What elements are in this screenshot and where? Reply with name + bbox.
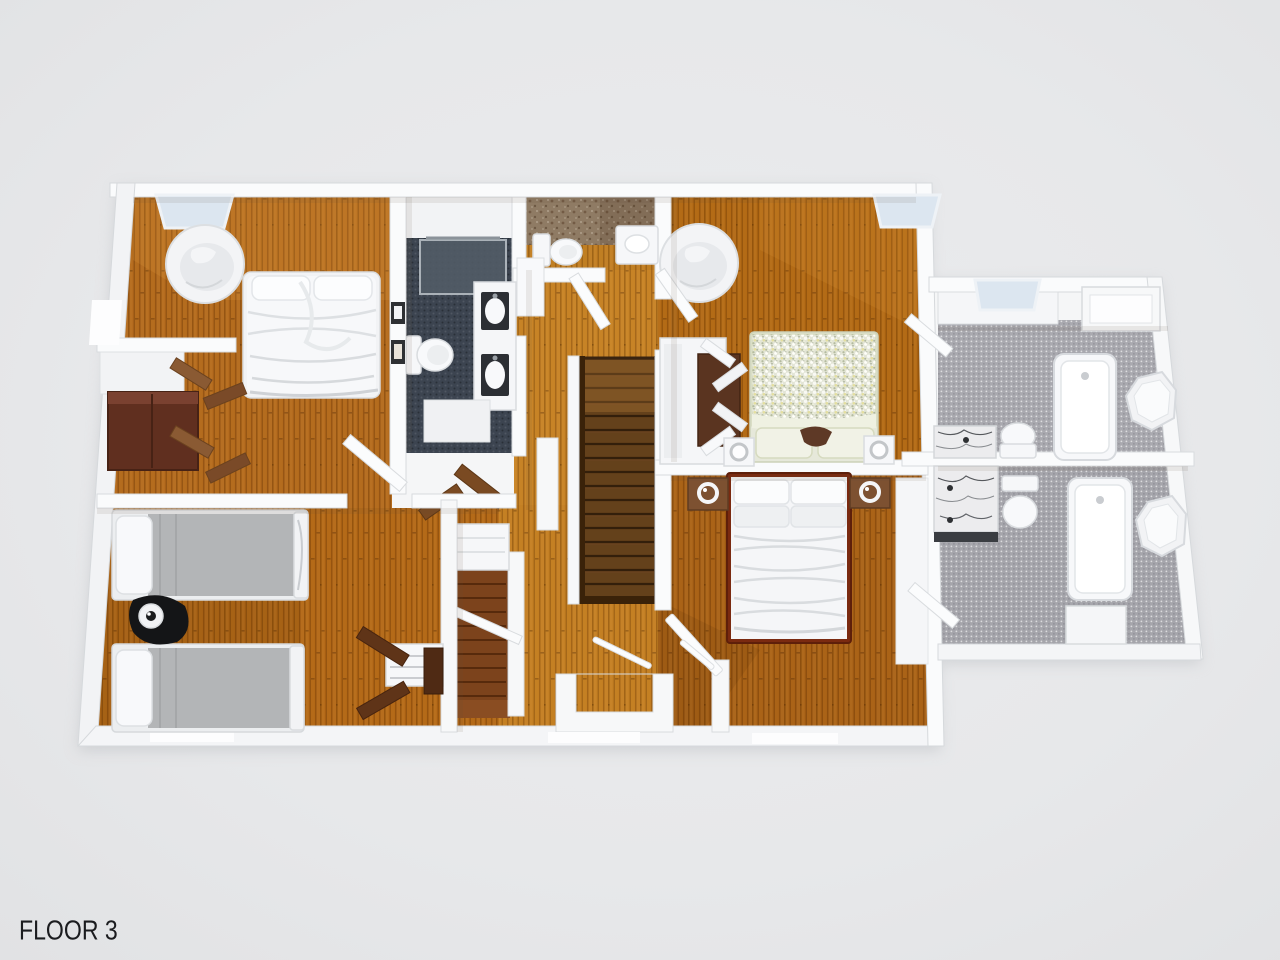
svg-text:FLOOR 3: FLOOR 3 [19, 916, 118, 946]
